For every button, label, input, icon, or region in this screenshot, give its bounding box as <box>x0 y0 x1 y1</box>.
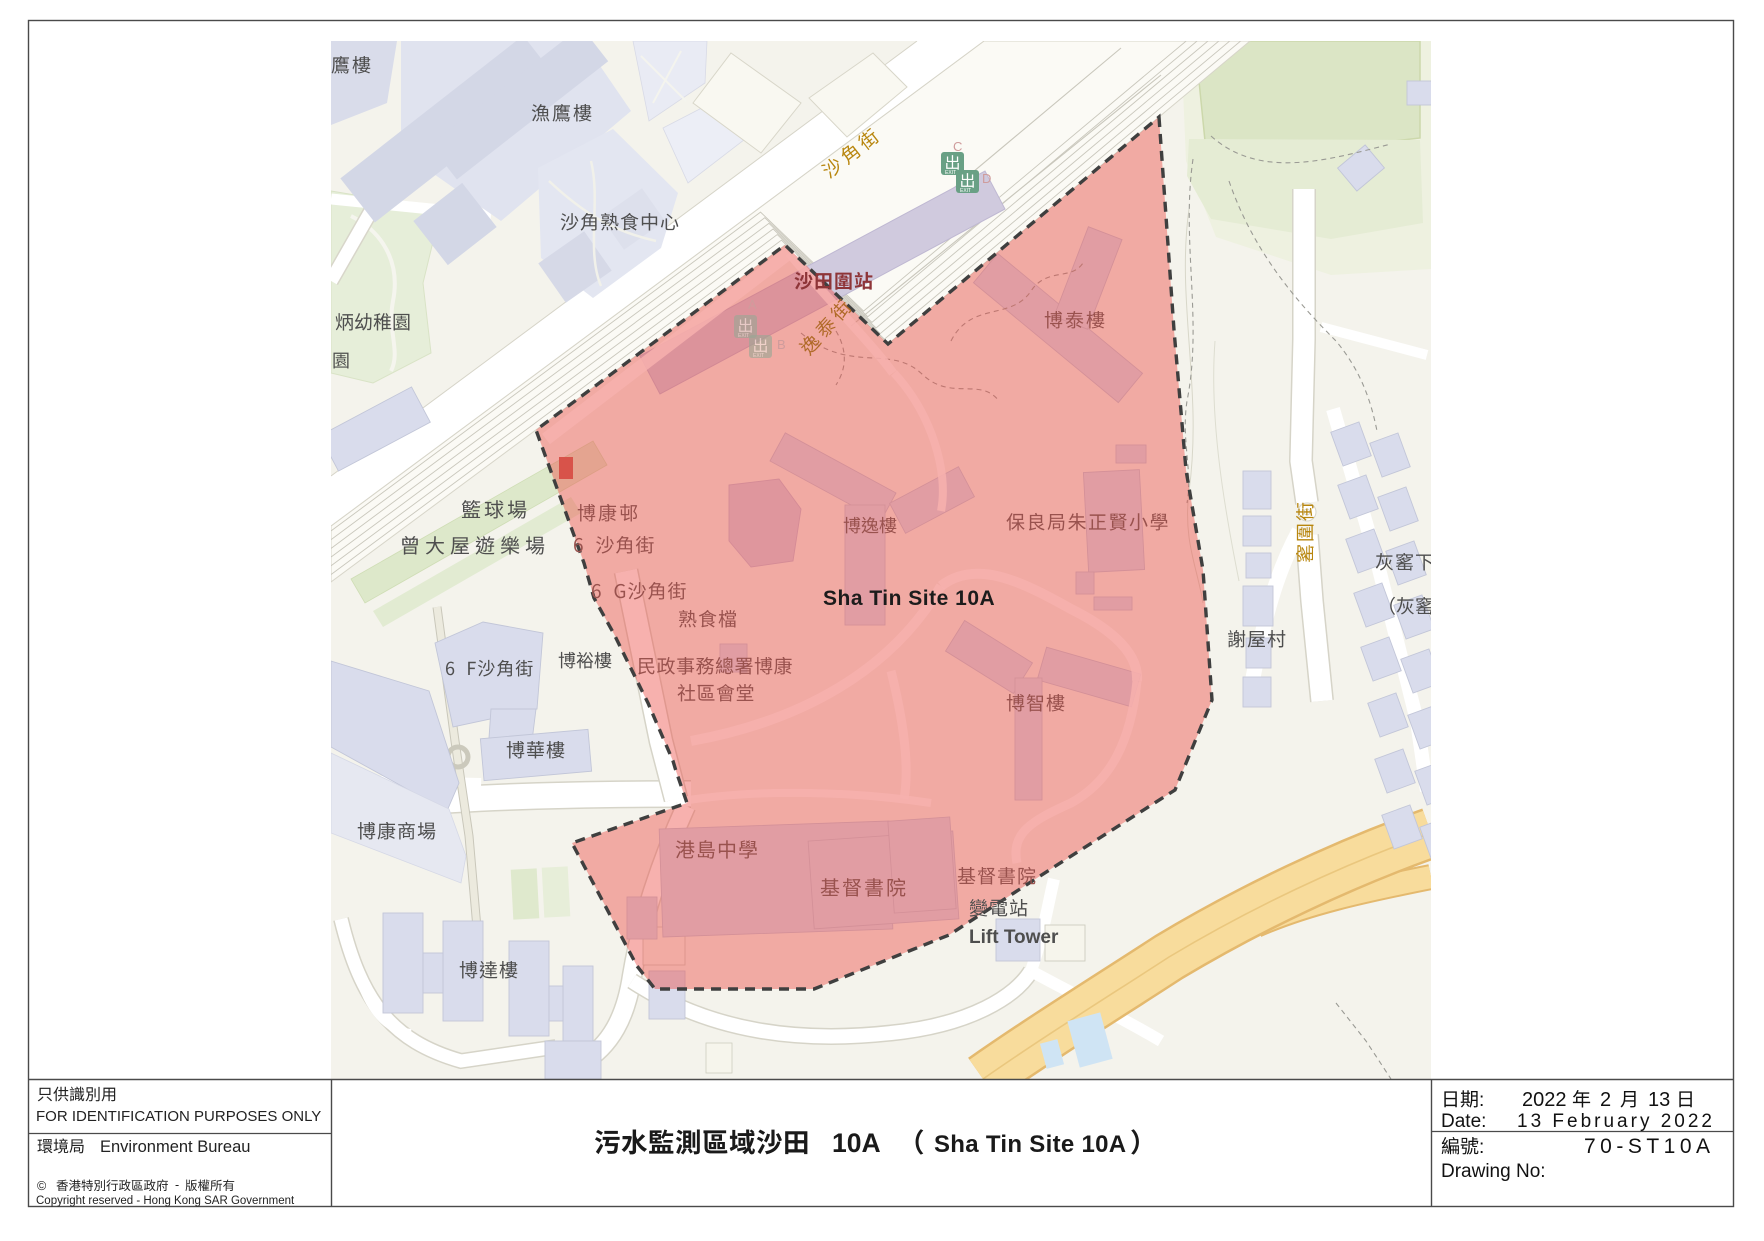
svg-text:C: C <box>953 139 962 154</box>
svg-text:EXIT: EXIT <box>738 333 749 339</box>
svg-text:D: D <box>982 171 991 186</box>
svg-text:Drawing No:: Drawing No: <box>1441 1161 1546 1182</box>
svg-text:EXIT: EXIT <box>753 353 764 359</box>
svg-text::: : <box>1479 1137 1484 1158</box>
svg-text:B: B <box>777 337 786 352</box>
svg-text:©: © <box>37 1179 47 1193</box>
svg-text:10A: 10A <box>832 1128 881 1158</box>
svg-text:A: A <box>748 297 757 312</box>
svg-text:EXIT: EXIT <box>945 170 956 176</box>
svg-text:Copyright reserved - Hong Kong: Copyright reserved - Hong Kong SAR Gover… <box>36 1195 295 1207</box>
svg-text:Lift Tower: Lift Tower <box>969 927 1059 948</box>
svg-text:70-ST10A: 70-ST10A <box>1584 1135 1715 1158</box>
svg-text:2: 2 <box>1600 1089 1611 1111</box>
svg-text:Sha Tin Site 10A: Sha Tin Site 10A <box>823 587 995 610</box>
svg-text:EXIT: EXIT <box>960 188 971 194</box>
svg-text:Date:: Date: <box>1441 1111 1486 1132</box>
svg-text:FOR IDENTIFICATION PURPOSES ON: FOR IDENTIFICATION PURPOSES ONLY <box>36 1108 321 1125</box>
svg-text::: : <box>1479 1090 1484 1111</box>
svg-text:Sha Tin Site 10A: Sha Tin Site 10A <box>934 1131 1126 1158</box>
svg-text:Environment Bureau: Environment Bureau <box>100 1138 250 1156</box>
svg-text:13: 13 <box>1648 1089 1670 1111</box>
svg-text:13 February 2022: 13 February 2022 <box>1517 1111 1715 1132</box>
svg-text:2022: 2022 <box>1522 1089 1567 1111</box>
svg-text:-: - <box>175 1178 179 1192</box>
